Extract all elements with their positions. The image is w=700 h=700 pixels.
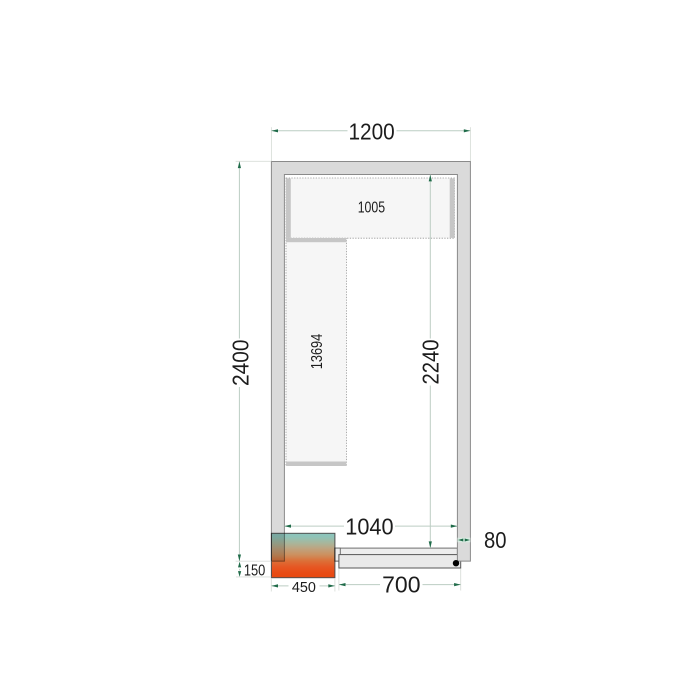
svg-text:2400: 2400 xyxy=(227,340,253,387)
svg-text:700: 700 xyxy=(382,572,420,598)
svg-text:2240: 2240 xyxy=(417,339,444,384)
svg-text:80: 80 xyxy=(484,527,507,554)
svg-text:1040: 1040 xyxy=(345,514,393,540)
svg-text:13694: 13694 xyxy=(309,334,327,370)
svg-text:450: 450 xyxy=(292,580,316,596)
svg-text:150: 150 xyxy=(244,562,265,580)
svg-text:1200: 1200 xyxy=(348,119,394,145)
svg-text:1005: 1005 xyxy=(358,199,385,217)
